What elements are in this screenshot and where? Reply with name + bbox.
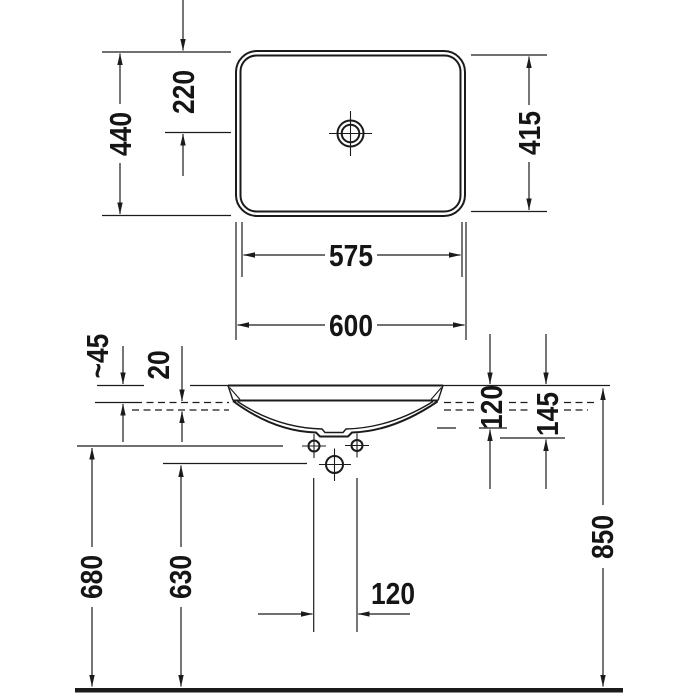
dim-label-415: 415 — [513, 111, 547, 155]
dim-inner-width: 575 — [242, 222, 462, 277]
dim-label-145: 145 — [531, 392, 565, 436]
dim-counter-recess: 20 — [142, 346, 182, 442]
washbasin-dimension-drawing: 440 220 415 575 — [0, 0, 700, 700]
dim-label-630: 630 — [164, 555, 198, 599]
bowl-outer-shell — [233, 401, 438, 437]
dim-rim-height-above-floor: 850 — [586, 389, 620, 687]
dim-label-440: 440 — [104, 112, 138, 156]
rim-left-cap — [228, 386, 233, 401]
dim-label-45: ~45 — [81, 334, 115, 379]
dim-rim-above-counter: ~45 — [81, 334, 123, 442]
dim-depth-to-bowl-bottom: 120 — [437, 334, 509, 489]
dim-depth-to-drain-flange: 145 — [500, 334, 565, 489]
top-view: 440 220 415 575 — [102, 0, 547, 343]
dim-label-575: 575 — [329, 239, 373, 273]
front-view: ~45 20 120 145 — [75, 334, 623, 693]
dim-fixing-holes-spacing: 120 — [258, 478, 415, 632]
floor-line — [75, 688, 623, 693]
rim-right-cap — [438, 386, 443, 401]
bowl-inner-shell — [238, 402, 434, 433]
dim-label-220: 220 — [167, 70, 201, 114]
dim-inner-depth: 415 — [471, 55, 547, 212]
dim-label-850: 850 — [586, 515, 620, 559]
dim-label-120-depth: 120 — [475, 385, 509, 429]
dim-fixing-holes-height: 680 — [75, 448, 109, 687]
dim-label-600: 600 — [329, 309, 373, 343]
dim-label-120-spacing: 120 — [371, 577, 415, 611]
dim-edge-to-drain: 220 — [165, 0, 231, 176]
fixing-holes-and-drain — [302, 434, 369, 482]
dim-label-20: 20 — [142, 350, 176, 379]
dim-drain-height: 630 — [164, 466, 198, 687]
technical-drawing-page: 440 220 415 575 — [0, 0, 700, 700]
dim-label-680: 680 — [75, 555, 109, 599]
